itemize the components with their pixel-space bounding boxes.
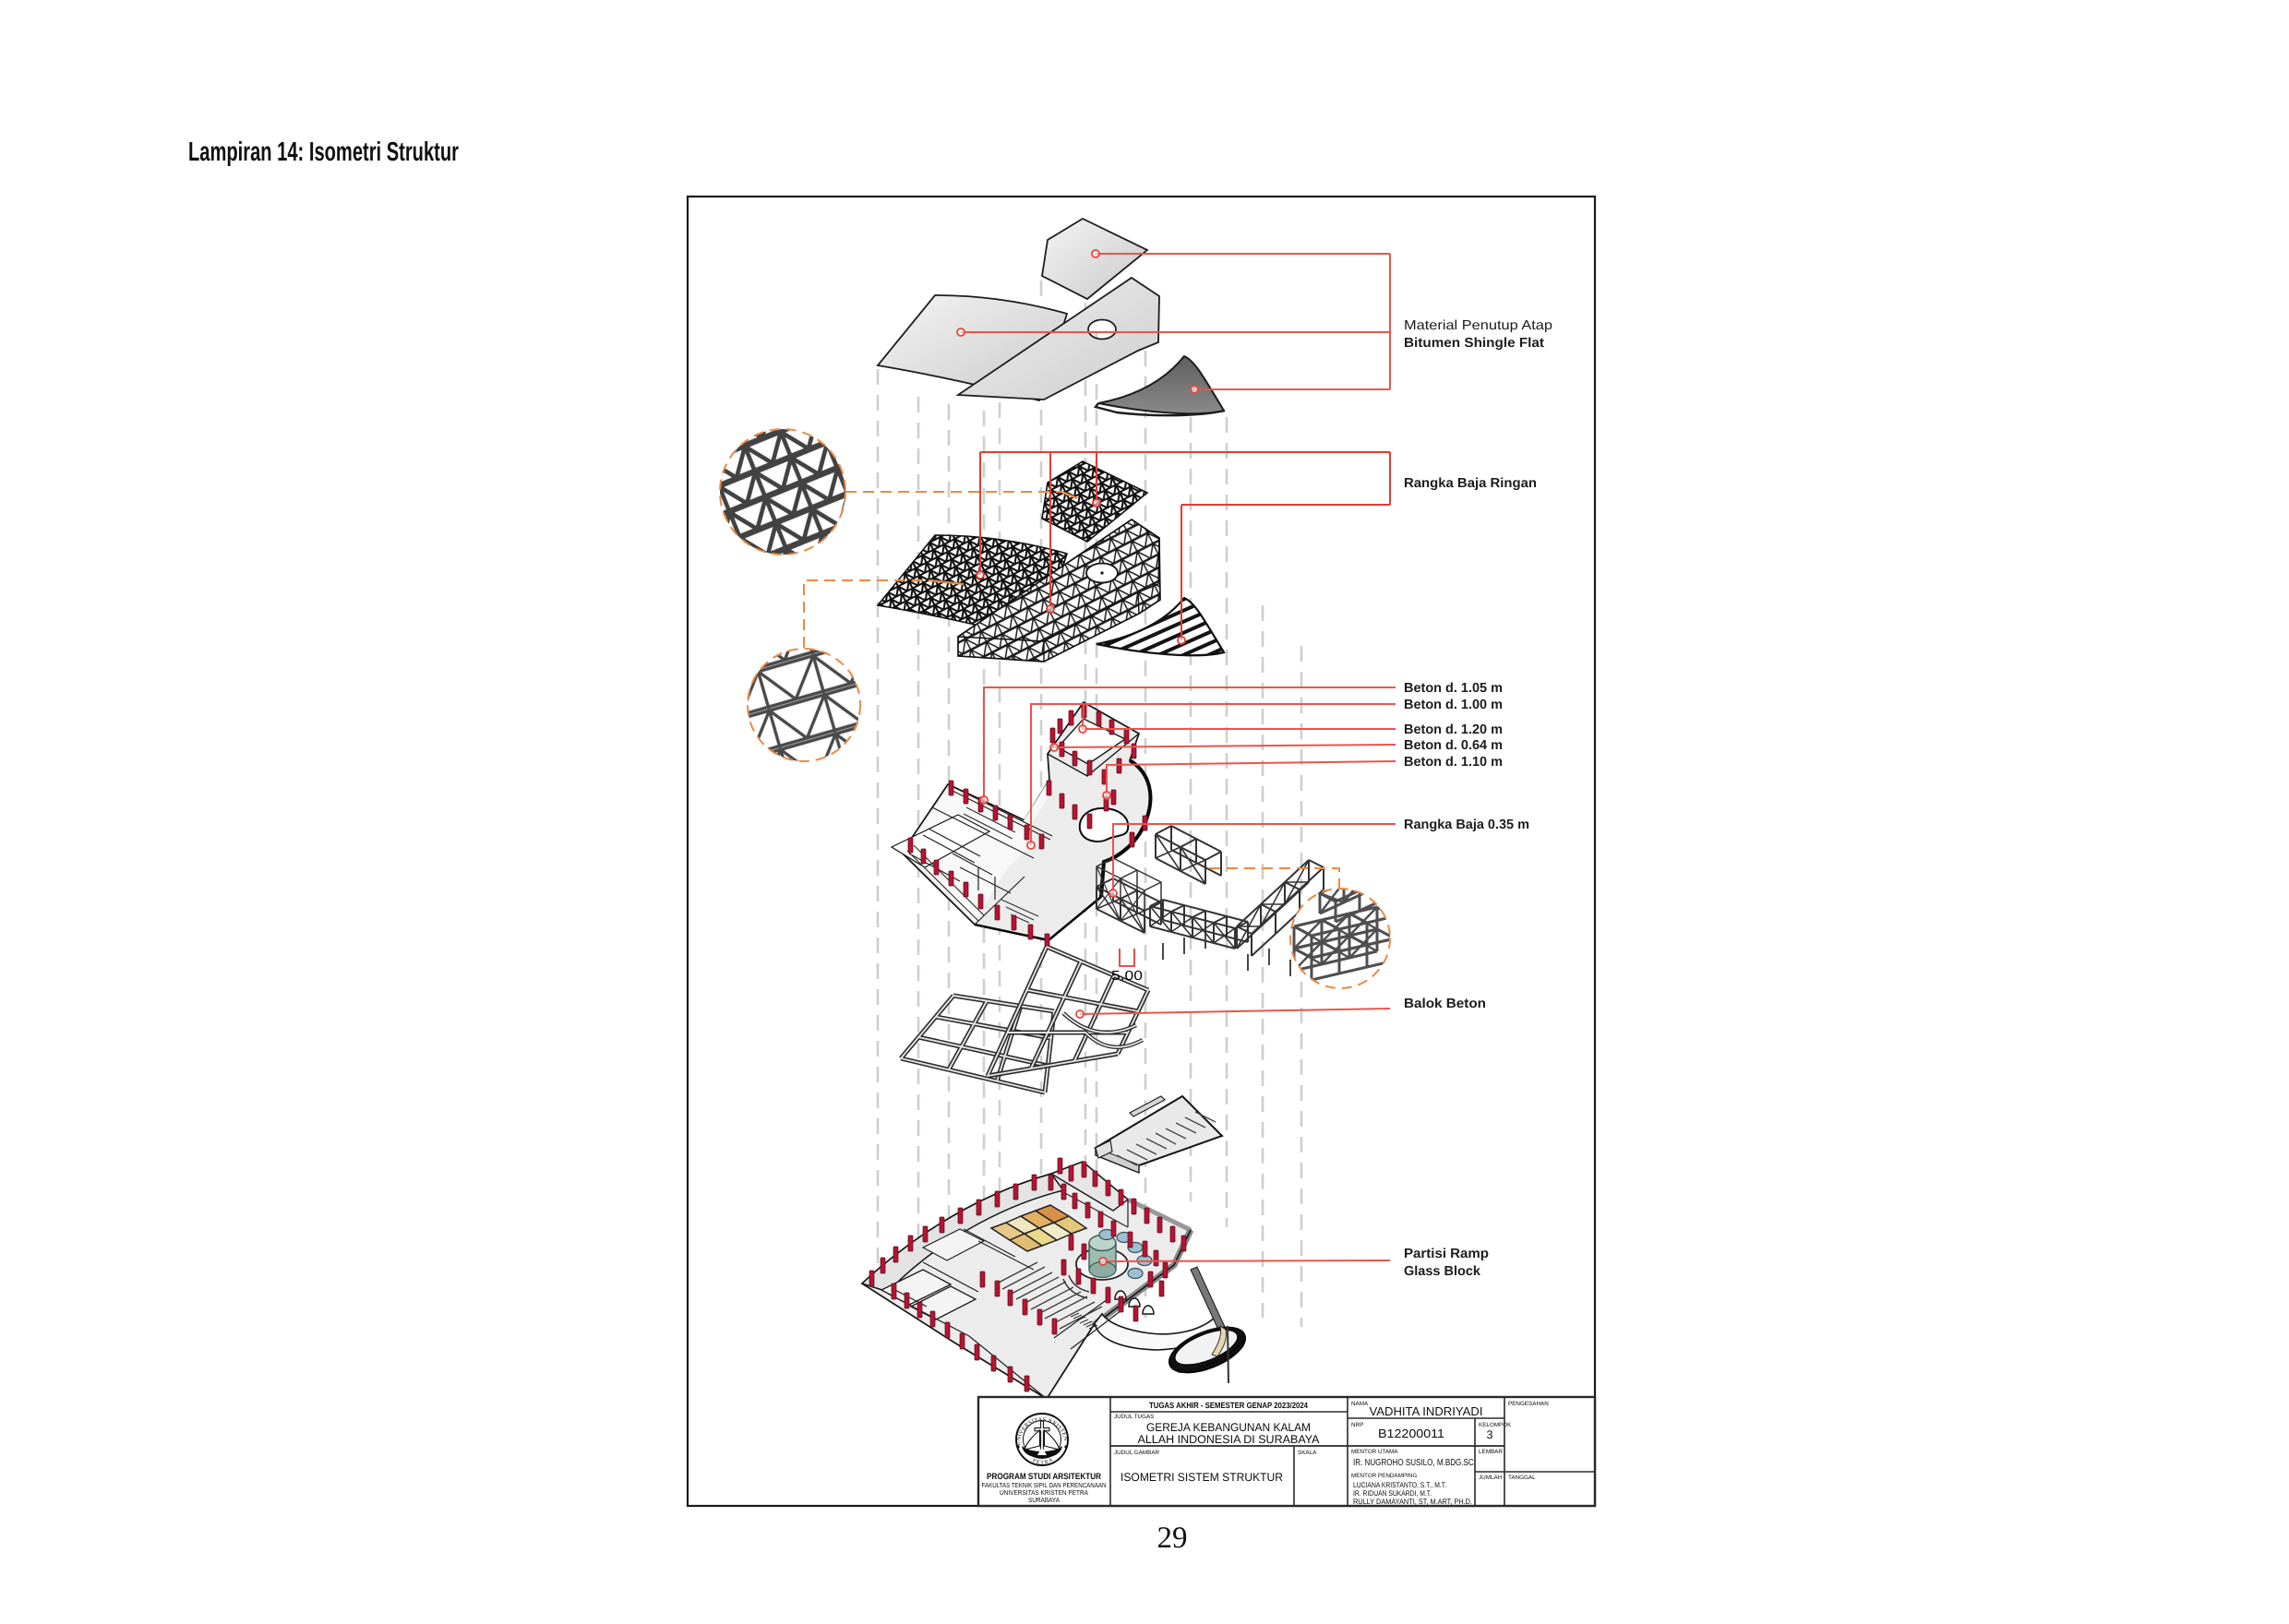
svg-text:VADHITA INDRIYADI: VADHITA INDRIYADI [1370,1404,1483,1418]
svg-text:LEMBAR: LEMBAR [1479,1449,1503,1455]
svg-text:KELOMPOK: KELOMPOK [1479,1422,1512,1428]
svg-text:B12200011: B12200011 [1378,1427,1444,1440]
svg-text:PENGESAHAN: PENGESAHAN [1508,1401,1549,1407]
svg-text:TUGAS AKHIR - SEMESTER GENAP 2: TUGAS AKHIR - SEMESTER GENAP 2023/2024 [1149,1401,1308,1410]
svg-text:3: 3 [1487,1428,1493,1441]
svg-text:JUDUL GAMBAR: JUDUL GAMBAR [1114,1450,1160,1456]
svg-text:Rangka Baja 0.35 m: Rangka Baja 0.35 m [1404,818,1529,832]
svg-text:Beton d. 0.64 m: Beton d. 0.64 m [1404,738,1503,753]
svg-text:Beton d. 1.10 m: Beton d. 1.10 m [1404,755,1503,770]
svg-text:5.00: 5.00 [1111,969,1143,984]
svg-text:RULLY DAMAYANTI, ST, M.ART, PH: RULLY DAMAYANTI, ST, M.ART, PH.D. [1353,1498,1472,1506]
svg-text:Glass Block: Glass Block [1404,1264,1481,1279]
svg-text:GEREJA KEBANGUNAN KALAM: GEREJA KEBANGUNAN KALAM [1146,1421,1311,1434]
svg-text:Rangka Baja Ringan: Rangka Baja Ringan [1404,476,1537,491]
svg-text:IR. NUGROHO SUSILO, M.BDG.SC.: IR. NUGROHO SUSILO, M.BDG.SC. [1353,1458,1476,1468]
svg-text:NAMA: NAMA [1351,1401,1369,1407]
svg-text:LUCIANA KRISTANTO, S.T., M.T.: LUCIANA KRISTANTO, S.T., M.T. [1353,1481,1446,1489]
svg-text:Beton d. 1.20 m: Beton d. 1.20 m [1404,722,1503,737]
svg-text:Balok Beton: Balok Beton [1404,997,1486,1011]
svg-text:JUMLAH: JUMLAH [1479,1475,1503,1481]
svg-text:SURABAYA: SURABAYA [1028,1496,1060,1504]
svg-text:Beton d. 1.05 m: Beton d. 1.05 m [1404,681,1503,696]
svg-text:ALLAH INDONESIA DI SURABAYA: ALLAH INDONESIA DI SURABAYA [1138,1433,1321,1446]
svg-text:Bitumen Shingle Flat: Bitumen Shingle Flat [1404,336,1544,351]
svg-text:ISOMETRI SISTEM STRUKTUR: ISOMETRI SISTEM STRUKTUR [1121,1471,1283,1484]
svg-text:MENTOR UTAMA: MENTOR UTAMA [1351,1449,1398,1455]
svg-text:JUDUL TUGAS: JUDUL TUGAS [1114,1414,1154,1420]
svg-text:NRP: NRP [1351,1422,1363,1428]
svg-text:TANGGAL: TANGGAL [1508,1475,1536,1481]
svg-text:Partisi Ramp: Partisi Ramp [1404,1247,1489,1261]
svg-text:Material Penutup Atap: Material Penutup Atap [1404,318,1552,333]
svg-text:Lampiran 14: Isometri Struktur: Lampiran 14: Isometri Struktur [188,137,459,167]
svg-text:29: 29 [1157,1522,1188,1555]
svg-text:SKALA: SKALA [1298,1450,1317,1456]
svg-text:MENTOR PENDAMPING: MENTOR PENDAMPING [1351,1473,1417,1479]
svg-text:Beton d. 1.00 m: Beton d. 1.00 m [1404,698,1503,712]
svg-text:IR. RIDUAN SUKARDI, M.T.: IR. RIDUAN SUKARDI, M.T. [1353,1489,1432,1498]
